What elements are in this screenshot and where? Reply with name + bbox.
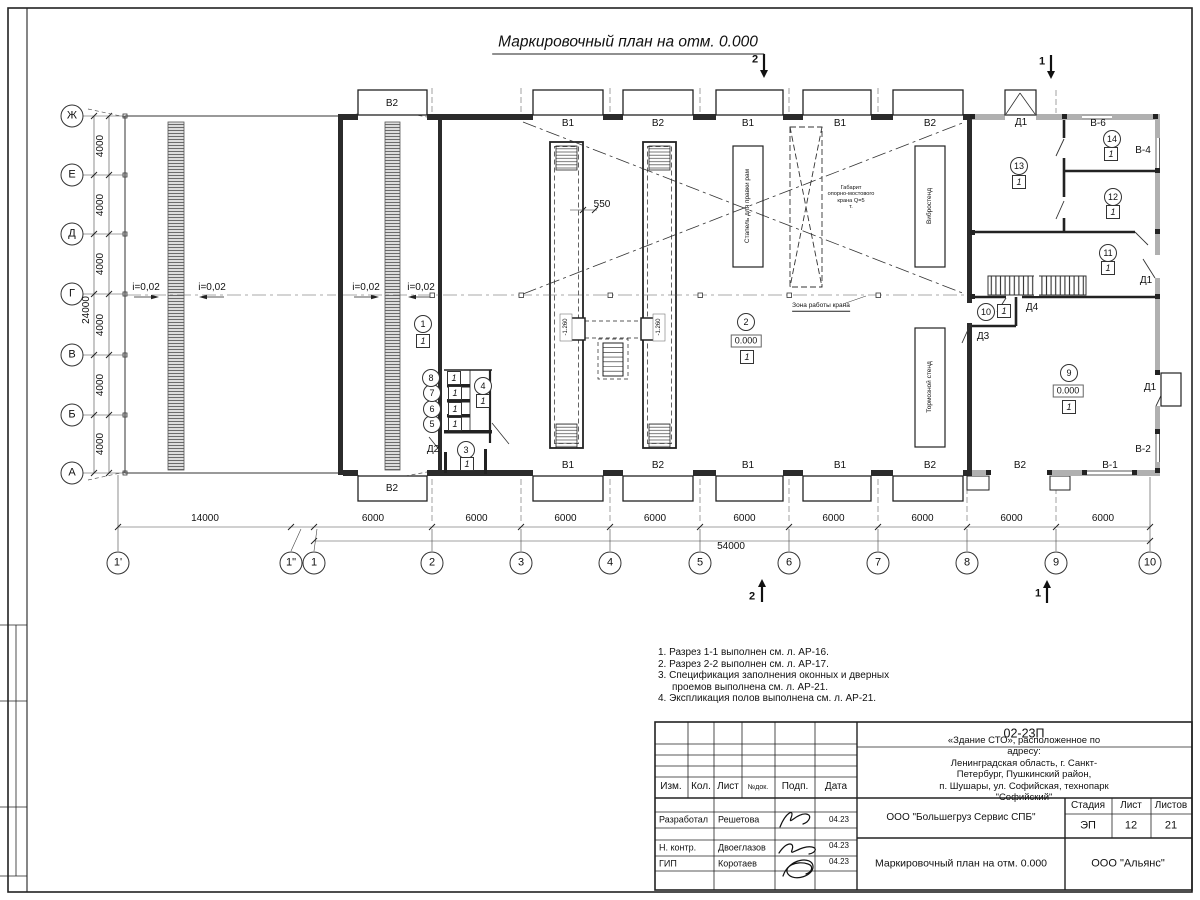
section-arrows <box>758 54 1055 603</box>
gates <box>358 90 1070 501</box>
titleblock-lines <box>655 722 1192 890</box>
canopy <box>88 109 433 480</box>
crane-zone <box>127 122 965 304</box>
crane-gauge-box <box>790 127 822 287</box>
equipment-rects <box>733 146 945 447</box>
annex <box>962 90 1181 476</box>
signatures <box>779 812 815 877</box>
pit-dim-550 <box>570 207 598 213</box>
drawing-sheet: Маркировочный план на отм. 0.000 ЖЕДГВБА… <box>0 0 1200 900</box>
plan-linework <box>0 0 1200 900</box>
row-axes-lines <box>83 113 127 476</box>
